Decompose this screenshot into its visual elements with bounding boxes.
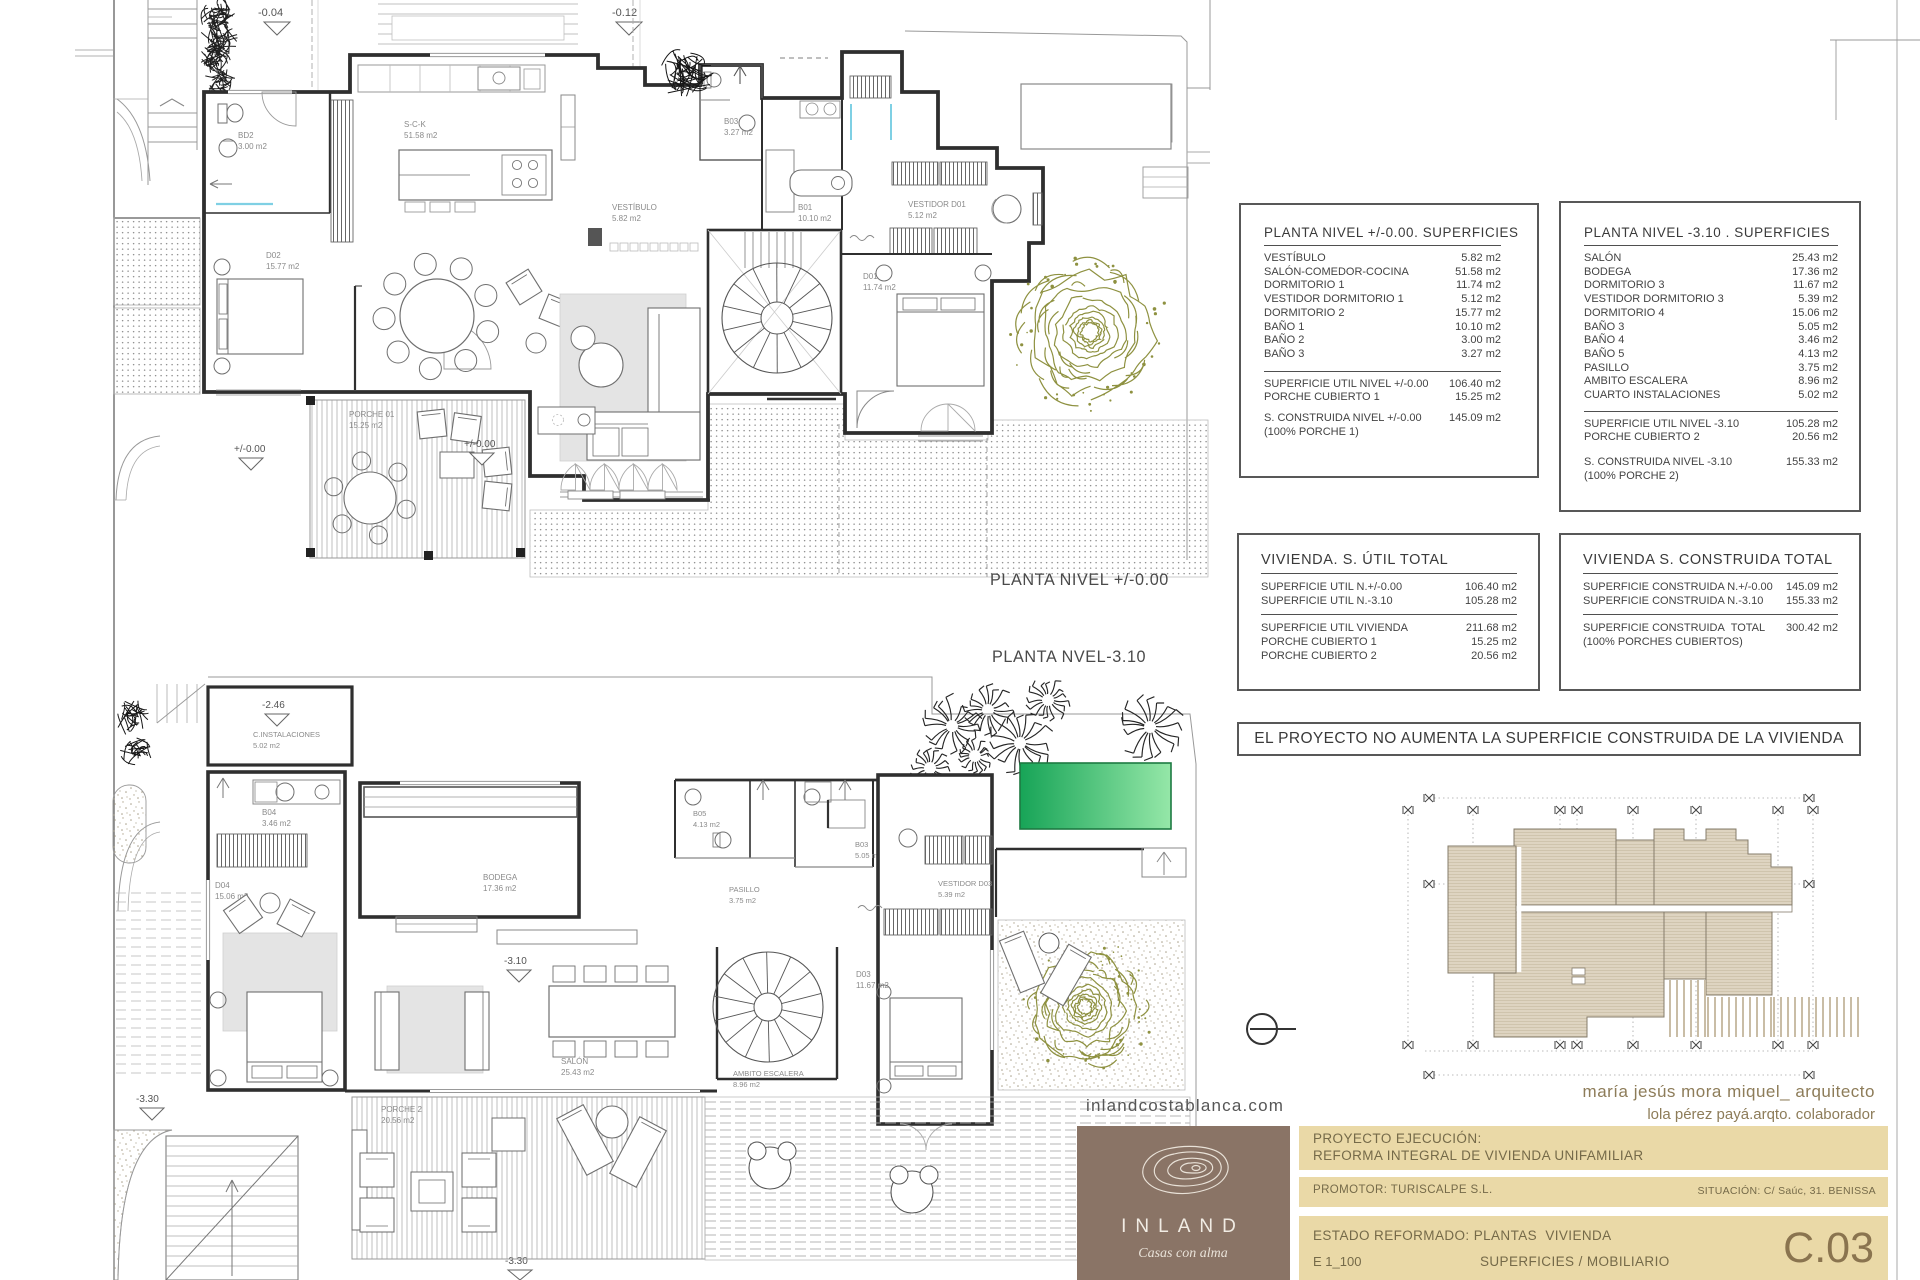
svg-text:3.75 m2: 3.75 m2 xyxy=(729,896,756,905)
svg-text:PLANTA NIVEL +/-0.00: PLANTA NIVEL +/-0.00 xyxy=(990,571,1169,589)
svg-text:-3.10: -3.10 xyxy=(504,956,527,967)
svg-text:3.00 m2: 3.00 m2 xyxy=(238,142,267,151)
svg-text:5.39 m2: 5.39 m2 xyxy=(938,890,965,899)
svg-text:11.74 m2: 11.74 m2 xyxy=(863,283,896,292)
svg-text:C.INSTALACIONES: C.INSTALACIONES xyxy=(253,730,320,739)
svg-text:B03: B03 xyxy=(855,840,868,849)
svg-text:D04: D04 xyxy=(215,881,230,890)
svg-text:Casas con alma: Casas con alma xyxy=(1138,1246,1227,1261)
svg-text:8.96 m2: 8.96 m2 xyxy=(733,1080,760,1089)
svg-text:B03: B03 xyxy=(724,117,739,126)
svg-text:BODEGA: BODEGA xyxy=(483,873,518,882)
svg-text:-3.30: -3.30 xyxy=(136,1094,159,1105)
svg-text:51.58 m2: 51.58 m2 xyxy=(404,131,438,140)
svg-text:S-C-K: S-C-K xyxy=(404,120,426,129)
svg-text:3.27 m2: 3.27 m2 xyxy=(724,128,753,137)
svg-text:VESTIDOR D01: VESTIDOR D01 xyxy=(908,200,966,209)
svg-text:D02: D02 xyxy=(266,251,281,260)
svg-text:4.13 m2: 4.13 m2 xyxy=(693,820,720,829)
svg-text:PORCHE 2: PORCHE 2 xyxy=(381,1105,422,1114)
svg-text:10.10 m2: 10.10 m2 xyxy=(798,214,832,223)
svg-text:PORCHE 01: PORCHE 01 xyxy=(349,410,395,419)
svg-text:PASILLO: PASILLO xyxy=(729,885,760,894)
svg-text:B05: B05 xyxy=(693,809,706,818)
svg-text:20.56 m2: 20.56 m2 xyxy=(381,1116,415,1125)
svg-text:25.43 m2: 25.43 m2 xyxy=(561,1068,595,1077)
svg-text:5.02 m2: 5.02 m2 xyxy=(253,741,280,750)
svg-text:-2.46: -2.46 xyxy=(262,700,285,711)
svg-text:-0.04: -0.04 xyxy=(258,7,283,19)
svg-text:D03: D03 xyxy=(856,970,871,979)
svg-text:15.25 m2: 15.25 m2 xyxy=(349,421,383,430)
svg-text:B04: B04 xyxy=(262,808,277,817)
svg-text:VESTIDOR D03: VESTIDOR D03 xyxy=(938,879,992,888)
svg-text:15.77 m2: 15.77 m2 xyxy=(266,262,300,271)
svg-text:+/-0.00: +/-0.00 xyxy=(464,439,496,450)
svg-text:AMBITO ESCALERA: AMBITO ESCALERA xyxy=(733,1069,804,1078)
svg-text:SALÓN: SALÓN xyxy=(561,1057,588,1066)
svg-text:3.46 m2: 3.46 m2 xyxy=(262,819,291,828)
svg-text:PLANTA NVEL-3.10: PLANTA NVEL-3.10 xyxy=(992,648,1146,666)
svg-text:VESTÍBULO: VESTÍBULO xyxy=(612,203,657,212)
svg-text:5.12 m2: 5.12 m2 xyxy=(908,211,937,220)
svg-text:B01: B01 xyxy=(798,203,813,212)
svg-text:5.82 m2: 5.82 m2 xyxy=(612,214,641,223)
svg-text:INLAND: INLAND xyxy=(1121,1216,1245,1237)
svg-text:BD2: BD2 xyxy=(238,131,254,140)
svg-text:+/-0.00: +/-0.00 xyxy=(234,444,266,455)
svg-text:17.36 m2: 17.36 m2 xyxy=(483,884,517,893)
